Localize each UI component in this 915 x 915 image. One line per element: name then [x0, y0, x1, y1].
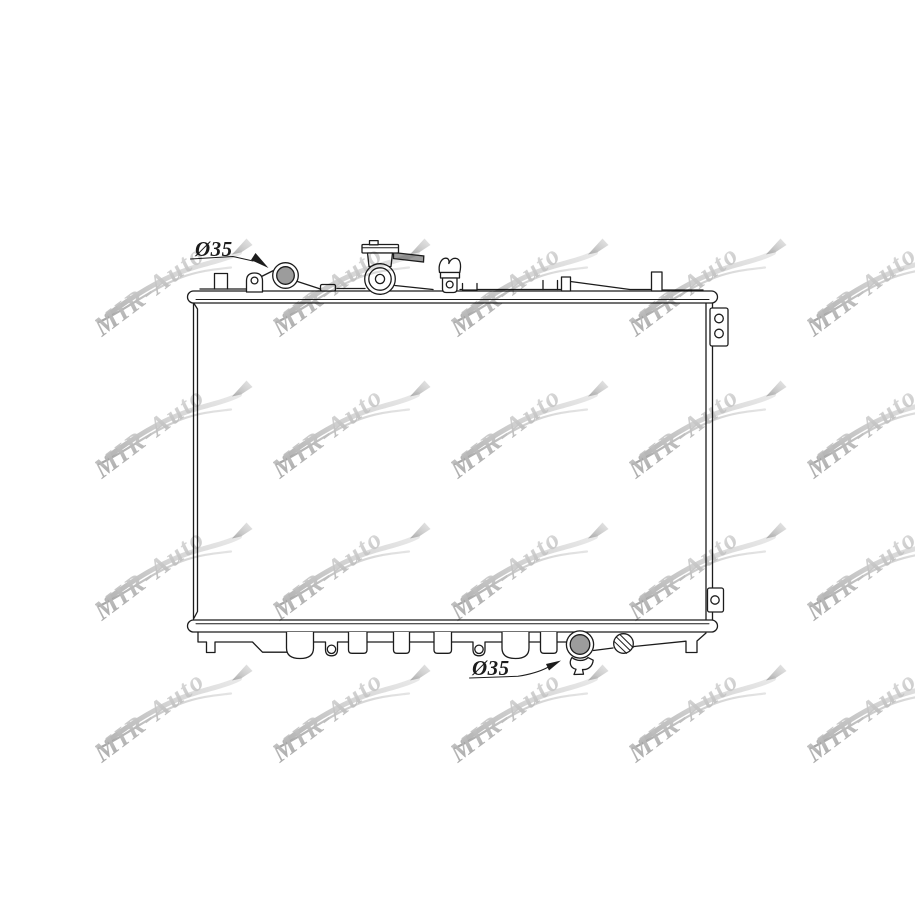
- radiator-core: [194, 303, 713, 620]
- cap-top-bump: [370, 241, 379, 245]
- top-post: [652, 272, 663, 291]
- core-face: [198, 303, 705, 620]
- bottom-tab-3: [434, 632, 452, 653]
- product-image: Ø35 Ø35 MIR-Auto MIR-Auto: [0, 0, 915, 915]
- wing-petals: [439, 258, 460, 272]
- bottom-tab-1: [349, 632, 368, 653]
- bracket-hole-lower: [715, 329, 724, 338]
- inlet-port: [247, 263, 299, 292]
- bottom-tab-4: [541, 632, 558, 653]
- wing-bracket: [439, 258, 460, 292]
- top-bump: [321, 285, 336, 292]
- inlet-bracket-hole: [251, 277, 258, 284]
- inlet-opening: [277, 267, 295, 285]
- bottom-lug-right-hole: [475, 645, 483, 653]
- cap-flange: [362, 245, 399, 254]
- filler-neck-assembly: [362, 241, 424, 295]
- top-arrowhead: [251, 253, 269, 268]
- outlet-opening: [570, 635, 590, 655]
- mounting-bracket-top-right: [710, 308, 728, 346]
- outlet-port: [566, 631, 593, 675]
- bracket-hole-upper: [715, 314, 724, 323]
- bottom-lug-left-hole: [327, 645, 335, 653]
- radiator-drawing: Ø35 Ø35: [0, 0, 915, 915]
- bottom-arrowhead: [546, 661, 561, 671]
- bottom-dome-right: [502, 632, 529, 659]
- drain-plug: [614, 634, 634, 654]
- wing-base: [441, 273, 460, 279]
- mounting-bracket-bottom-right: [708, 588, 724, 612]
- bracket-hole: [711, 596, 719, 604]
- bottom-flange: [188, 620, 718, 632]
- top-rib-tab: [562, 277, 571, 291]
- top-tab: [215, 274, 228, 290]
- left-side-channel: [194, 303, 198, 619]
- bottom-tank: [188, 620, 718, 659]
- spring-clip-right: [543, 281, 558, 290]
- filler-neck-center: [375, 274, 384, 283]
- bottom-dome-left: [287, 632, 314, 659]
- outlet-clip: [570, 658, 593, 675]
- spring-clip-left: [463, 284, 478, 291]
- overflow-tube: [394, 253, 424, 263]
- bottom-tab-2: [394, 632, 410, 653]
- right-side-channel: [706, 303, 713, 620]
- wing-bracket-hole: [446, 281, 453, 288]
